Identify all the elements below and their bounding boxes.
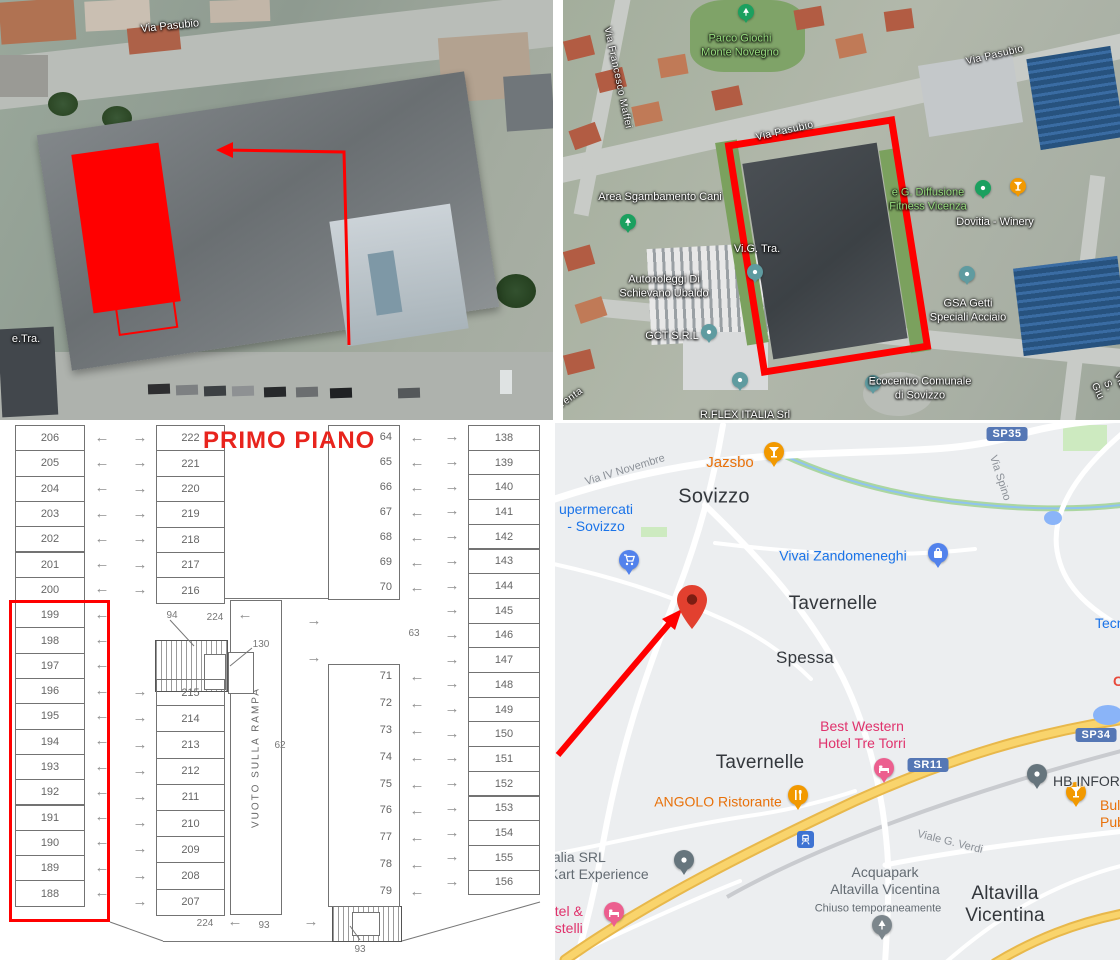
route-line xyxy=(222,150,349,345)
pond xyxy=(1044,511,1062,525)
route-badge: SR11 xyxy=(908,758,949,772)
bar-pin[interactable] xyxy=(764,442,784,462)
place-pin[interactable] xyxy=(674,850,694,870)
town-label: Tavernelle xyxy=(789,593,878,615)
fork-knife-icon xyxy=(792,789,804,801)
dot-icon xyxy=(750,267,760,277)
dim-label: 224 xyxy=(190,918,220,929)
dim-label: 62 xyxy=(268,740,292,751)
fitness-pin[interactable] xyxy=(975,180,991,196)
hotel-pin[interactable] xyxy=(604,902,624,922)
dim-label: 93 xyxy=(252,920,276,931)
solar-panel-roof xyxy=(1013,256,1120,356)
place-pin[interactable] xyxy=(959,266,975,282)
town-label: Tavernelle xyxy=(716,752,805,774)
poi-label[interactable]: HB INFORMATI xyxy=(1053,773,1120,790)
poi-label[interactable]: GCT S.R.L xyxy=(645,330,699,344)
tree-icon xyxy=(741,7,751,17)
pin-body xyxy=(677,585,707,629)
partial-poi-label[interactable]: C xyxy=(1113,673,1120,690)
route-badge: SP35 xyxy=(987,427,1028,441)
bed-icon xyxy=(878,762,890,774)
dim-label: 94 xyxy=(160,610,184,621)
hotel-pin[interactable] xyxy=(874,758,894,778)
poi-label[interactable]: Area Sgambamento Cani xyxy=(598,191,722,205)
stall-highlight-rectangle xyxy=(9,600,110,922)
tree-icon xyxy=(876,919,888,931)
wine-glass-icon xyxy=(1013,181,1023,191)
poi-label[interactable]: Best Western Hotel Tre Torri xyxy=(818,718,906,752)
dot-icon xyxy=(962,269,972,279)
plan-outline-lines xyxy=(110,599,540,942)
bed-icon xyxy=(608,906,620,918)
dot-icon xyxy=(1031,768,1043,780)
poi-label[interactable]: Dovitia - Winery xyxy=(956,216,1034,230)
place-pin[interactable] xyxy=(747,264,763,280)
shopping-bag-icon xyxy=(932,547,944,559)
place-pin[interactable] xyxy=(701,324,717,340)
partial-poi-label[interactable]: Tecn xyxy=(1095,615,1120,632)
supermarket-pin[interactable] xyxy=(619,550,639,570)
poi-label[interactable]: Autonoleggi Di Schievano Ubaldo xyxy=(619,273,708,301)
road-map-panel: Sovizzo Tavernelle Spessa Tavernelle Alt… xyxy=(555,423,1120,960)
dot-icon xyxy=(978,183,988,193)
poi-label[interactable]: Bull Pub xyxy=(1100,797,1120,831)
poi-label[interactable]: R.FLEX ITALIA Srl xyxy=(700,409,790,420)
poi-label[interactable]: otel & astelli xyxy=(555,903,583,937)
town-label: Altavilla Vicentina xyxy=(965,883,1045,927)
pin-center-dot xyxy=(687,594,697,604)
destination-pin[interactable] xyxy=(677,585,707,629)
poi-label[interactable]: Vivai Zandomeneghi xyxy=(779,548,906,565)
dim-label: 224 xyxy=(200,612,230,623)
place-pin[interactable] xyxy=(1027,764,1047,784)
floor-plan-panel: PRIMO PIANO VUOTO SULLA RAMPA 94 224 ← 1… xyxy=(0,420,555,960)
tree-icon xyxy=(623,217,633,227)
poi-label[interactable]: GSA Getti Speciali Acciaio xyxy=(930,297,1006,325)
park-pin[interactable] xyxy=(620,214,636,230)
town-label: Sovizzo xyxy=(678,486,749,509)
cocktail-icon xyxy=(768,446,780,458)
route-badge: SP34 xyxy=(1076,728,1117,742)
place-pin[interactable] xyxy=(732,372,748,388)
solar-panel-roof xyxy=(1026,46,1120,150)
town-label: Spessa xyxy=(776,648,834,668)
poi-status-label: Chiuso temporaneamente xyxy=(815,902,942,915)
dot-icon xyxy=(704,327,714,337)
train-station-icon[interactable] xyxy=(797,831,814,848)
dim-label: 63 xyxy=(402,628,426,639)
shopping-cart-icon xyxy=(623,554,635,566)
dim-label: 130 xyxy=(246,639,276,650)
poi-label[interactable]: upermercati - Sovizzo xyxy=(559,501,633,535)
dim-label: 93 xyxy=(348,944,372,955)
train-glyph xyxy=(799,833,812,846)
dot-icon xyxy=(678,854,690,866)
house-roof xyxy=(884,8,915,32)
park-pin[interactable] xyxy=(872,915,892,935)
route-annotation xyxy=(0,0,553,420)
poi-label[interactable]: talia SRL Kart Experience xyxy=(555,849,649,883)
poi-label[interactable]: Vi.G. Tra. xyxy=(734,243,780,257)
poi-label[interactable]: e G. Diffusione Fitness Vicenza xyxy=(889,186,966,214)
poi-label[interactable]: Acquapark Altavilla Vicentina xyxy=(830,864,939,898)
floor-plan-layer: PRIMO PIANO VUOTO SULLA RAMPA 94 224 ← 1… xyxy=(0,420,555,960)
shopping-pin[interactable] xyxy=(928,543,948,563)
dot-icon xyxy=(735,375,745,385)
satellite-map-panel: Parco Giochi Monte Novegno Area Sgambame… xyxy=(563,0,1120,420)
route-arrowhead-icon xyxy=(216,142,233,158)
park-pin[interactable] xyxy=(738,4,754,20)
aerial-photo-panel: Via Pasubio e.Tra. xyxy=(0,0,553,420)
floor-plan-title: PRIMO PIANO xyxy=(203,427,375,455)
collage-page: Via Pasubio e.Tra. xyxy=(0,0,1120,960)
winery-pin[interactable] xyxy=(1010,178,1026,194)
poi-label[interactable]: ANGOLO Ristorante xyxy=(654,794,782,811)
poi-label[interactable]: Jazsbo xyxy=(706,454,754,472)
restaurant-pin[interactable] xyxy=(788,785,808,805)
poi-label[interactable]: Parco Giochi Monte Novegno xyxy=(701,32,779,60)
poi-label[interactable]: Ecocentro Comunale di Sovizzo xyxy=(869,375,972,403)
